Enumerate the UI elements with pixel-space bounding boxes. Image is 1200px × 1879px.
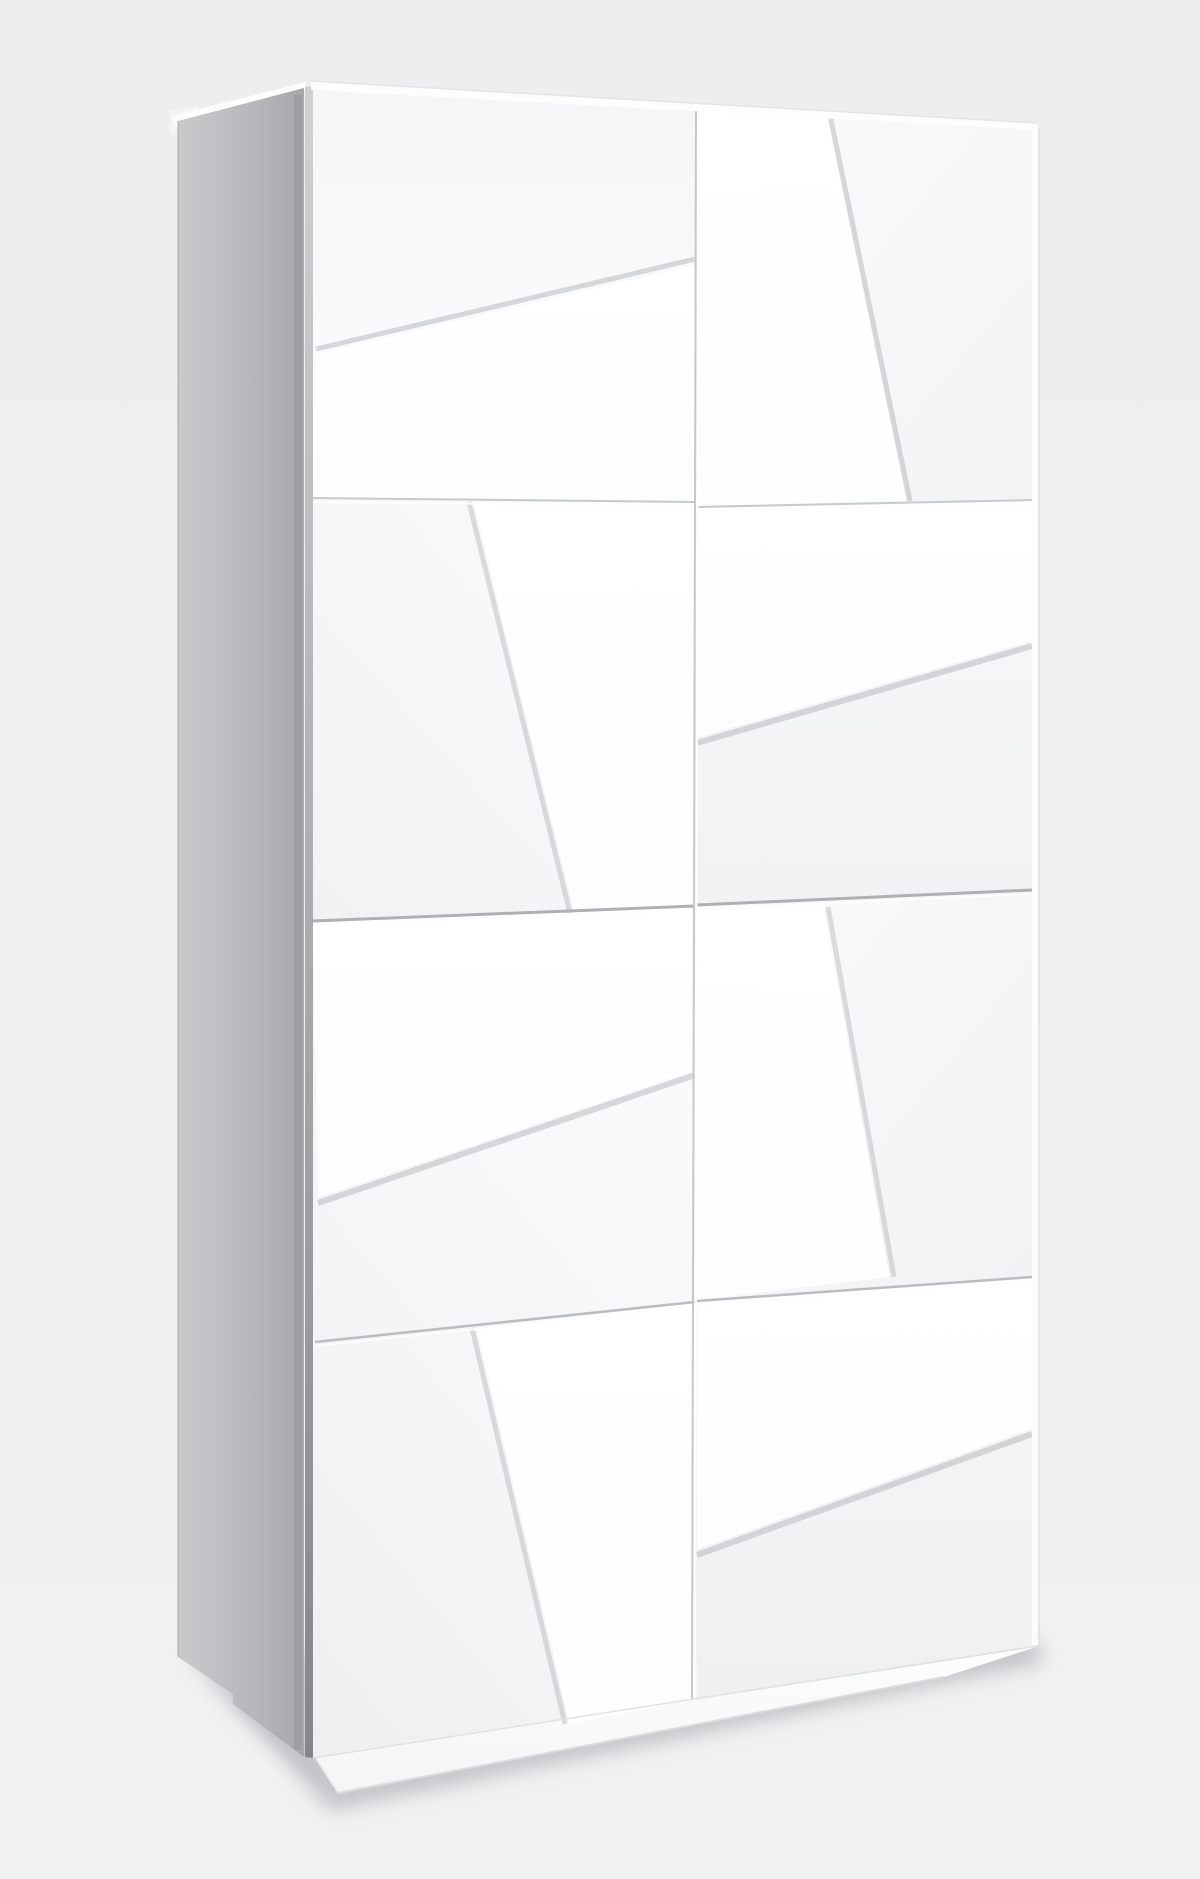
wardrobe-render: [0, 0, 1200, 1879]
side-panel: [178, 88, 304, 1757]
front-left-reveal-sliver: [305, 86, 313, 1758]
wardrobe-product-render: [0, 0, 1200, 1879]
right-carcass-edge-strip: [1032, 127, 1039, 1646]
